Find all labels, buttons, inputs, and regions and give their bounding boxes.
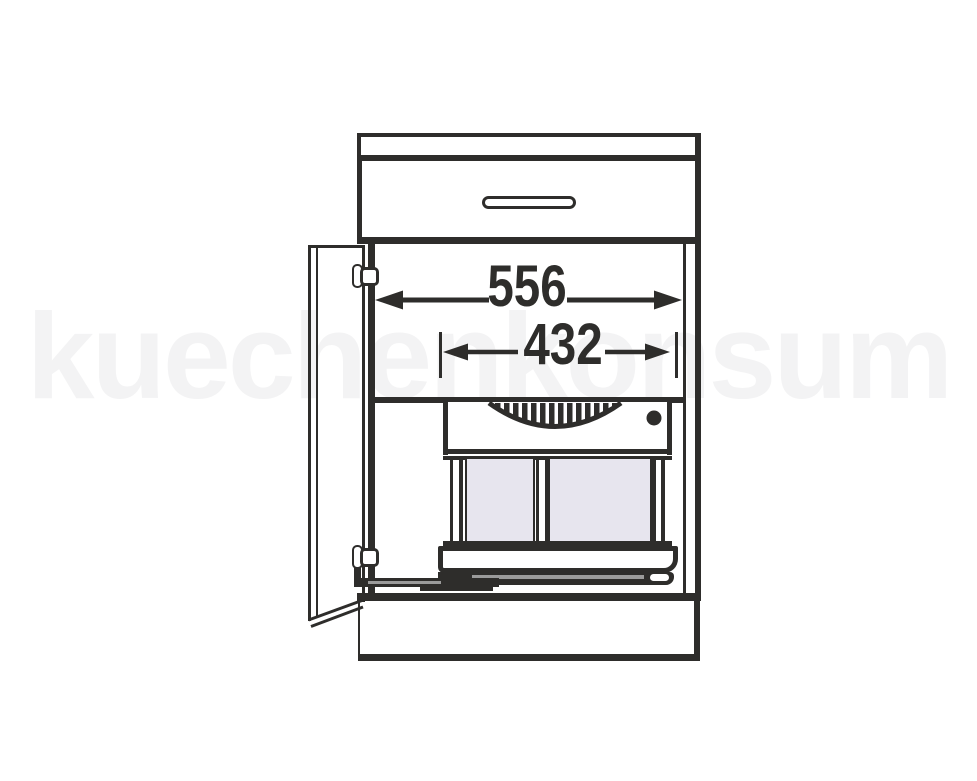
dimension-556-arrows: [375, 291, 682, 310]
dimension-432-arrows: [443, 344, 670, 361]
door-bottom-edge: [309, 601, 364, 627]
lid-knob-icon: [647, 411, 662, 426]
line-art-overlay: [0, 0, 977, 781]
lid-vent-grille-icon: [489, 403, 621, 427]
diagram-canvas: kuechenkonsum 556 432: [0, 0, 977, 781]
